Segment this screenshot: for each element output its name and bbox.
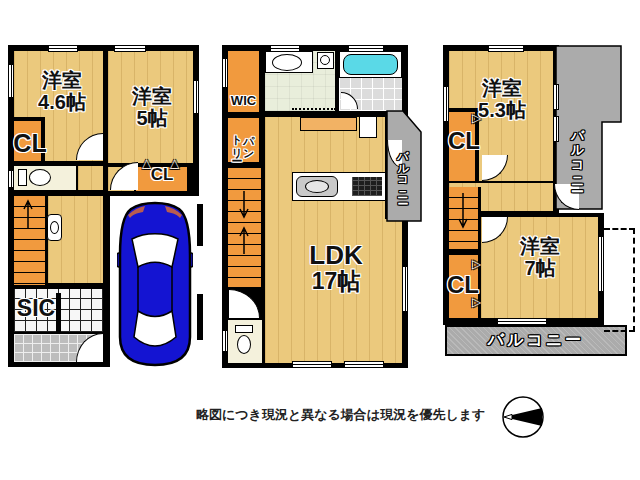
room-label: 洋室4.6帖 — [22, 70, 102, 113]
balcony-label: バルコニー — [445, 331, 627, 348]
closet-label: CL — [146, 166, 178, 184]
stairs-down-arrow-icon — [458, 191, 468, 229]
garage-wall — [197, 204, 203, 246]
window — [553, 116, 559, 142]
window — [222, 58, 228, 88]
toilet-bowl — [29, 169, 51, 186]
room-label: 洋室5.3帖 — [457, 78, 547, 121]
disclaimer-text: 略図につき現況と異なる場合は現況を優先します — [196, 406, 485, 424]
stairs-up-arrow-icon — [239, 226, 249, 256]
balcony-label: バルコニー — [570, 98, 584, 208]
window — [48, 45, 78, 52]
sliding-door — [292, 108, 336, 110]
counter-shelf — [300, 117, 357, 131]
closet-label: CL — [12, 130, 48, 157]
stove — [352, 177, 382, 196]
bathtub — [343, 54, 398, 75]
balcony-label: バルコニー — [396, 126, 408, 216]
washbasin — [47, 214, 62, 241]
toilet-tank — [18, 169, 27, 186]
pantry-label: パン トリー — [230, 120, 254, 162]
window — [344, 361, 384, 368]
window — [8, 170, 14, 188]
shoe-closet-label: SIC — [15, 296, 57, 321]
hanger-icon: ▷ — [472, 258, 481, 270]
garage-wall — [197, 294, 203, 340]
kitchen-sink-bowl — [305, 180, 329, 193]
car-icon — [117, 199, 193, 367]
wic-label: WIC — [228, 94, 259, 108]
refrigerator-space — [359, 116, 377, 138]
window — [553, 84, 559, 110]
closet-label: CL — [447, 128, 481, 154]
sink-bowl — [272, 54, 302, 71]
window — [114, 45, 146, 52]
setback-outline — [604, 228, 635, 332]
floorplan-page: △ △ 洋室4.6帖 洋室5帖 CL CL SIC — [0, 0, 640, 480]
window — [193, 80, 199, 114]
washing-machine-drum — [320, 55, 330, 65]
washing-machine — [317, 52, 334, 69]
toilet-bowl — [237, 335, 251, 354]
room-label: 洋室7帖 — [488, 236, 592, 279]
hall-strip — [78, 166, 103, 190]
window — [402, 266, 408, 312]
window — [488, 45, 524, 52]
washbasin-bowl — [50, 221, 59, 234]
window — [270, 45, 300, 52]
window — [348, 45, 384, 52]
window — [292, 361, 332, 368]
room-label: 洋室5帖 — [112, 86, 192, 129]
window — [598, 236, 604, 292]
compass-icon — [501, 395, 545, 439]
window — [8, 64, 14, 98]
toilet-tank — [235, 325, 253, 333]
stairs-up-arrow-icon — [23, 199, 33, 231]
closet-label: CL — [446, 272, 480, 298]
ldk-label: LDK 17帖 — [283, 241, 389, 294]
window — [443, 86, 449, 122]
stairs-down-arrow-icon — [239, 189, 249, 219]
window — [497, 318, 547, 325]
window — [222, 330, 228, 352]
